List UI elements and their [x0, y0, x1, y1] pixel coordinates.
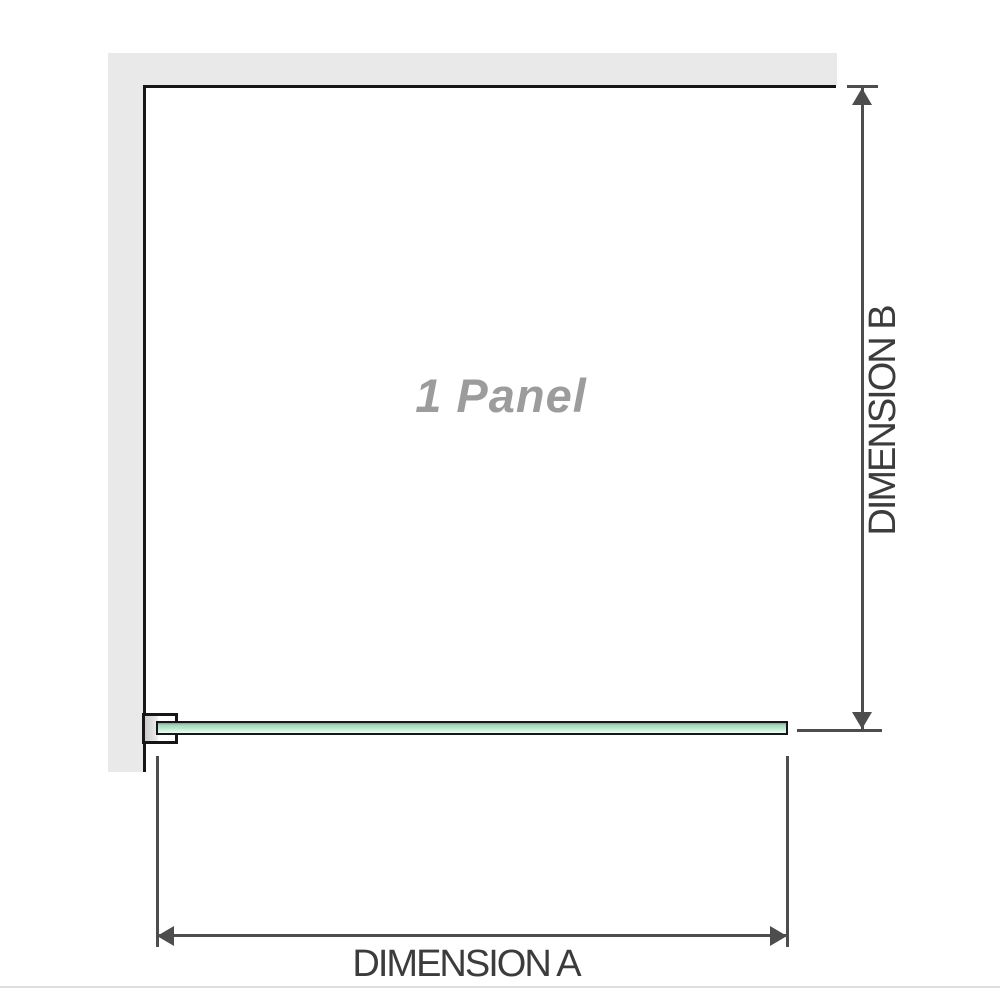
- enclosure-outline-top: [143, 85, 836, 88]
- shower-screen-diagram: 1 Panel DIMENSION B DIMENSION A: [0, 0, 1000, 1000]
- enclosure-outline-left: [143, 85, 146, 772]
- arrow-up-icon: [852, 88, 872, 105]
- dimension-a-extension-left: [156, 756, 159, 947]
- dimension-b-tick-bottom: [797, 729, 882, 732]
- arrow-right-icon: [770, 926, 787, 946]
- dimension-b-label: DIMENSION B: [864, 271, 902, 571]
- dimension-a-label: DIMENSION A: [316, 944, 616, 984]
- panel-count-label: 1 Panel: [336, 366, 666, 426]
- arrow-left-icon: [157, 926, 174, 946]
- glass-panel: [156, 721, 788, 735]
- page-separator-line: [0, 986, 1000, 988]
- dimension-a-extension-right: [786, 756, 789, 947]
- wall-top: [108, 53, 837, 85]
- arrow-down-icon: [852, 712, 872, 729]
- wall-left: [108, 53, 143, 772]
- dimension-a-line: [157, 934, 787, 937]
